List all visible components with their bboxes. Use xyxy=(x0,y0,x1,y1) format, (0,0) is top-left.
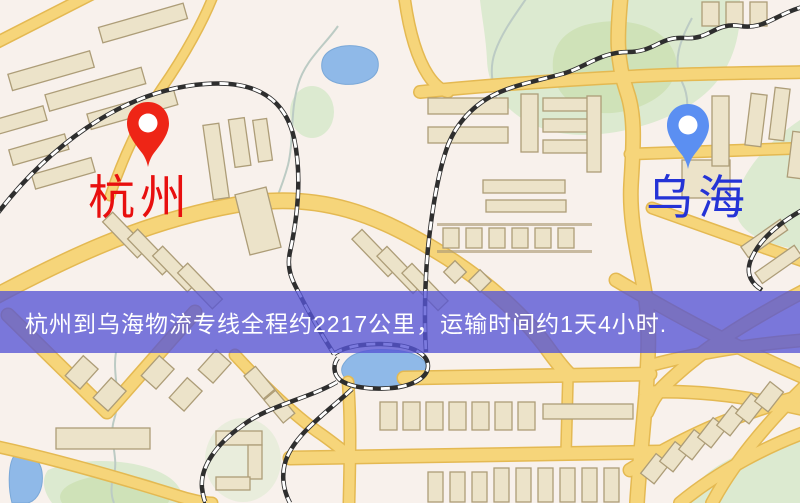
map-image xyxy=(0,0,800,503)
origin-pin-icon[interactable] xyxy=(124,100,172,170)
destination-pin-icon[interactable] xyxy=(664,102,712,172)
origin-city-label: 杭州 xyxy=(88,176,192,223)
destination-city-label: 乌海 xyxy=(646,176,750,223)
route-info-text: 杭州到乌海物流专线全程约2217公里，运输时间约1天4小时. xyxy=(25,305,667,339)
map-canvas: 杭州 乌海 杭州到乌海物流专线全程约2217公里，运输时间约1天4小时. xyxy=(0,0,800,503)
route-info-banner: 杭州到乌海物流专线全程约2217公里，运输时间约1天4小时. xyxy=(0,291,800,353)
